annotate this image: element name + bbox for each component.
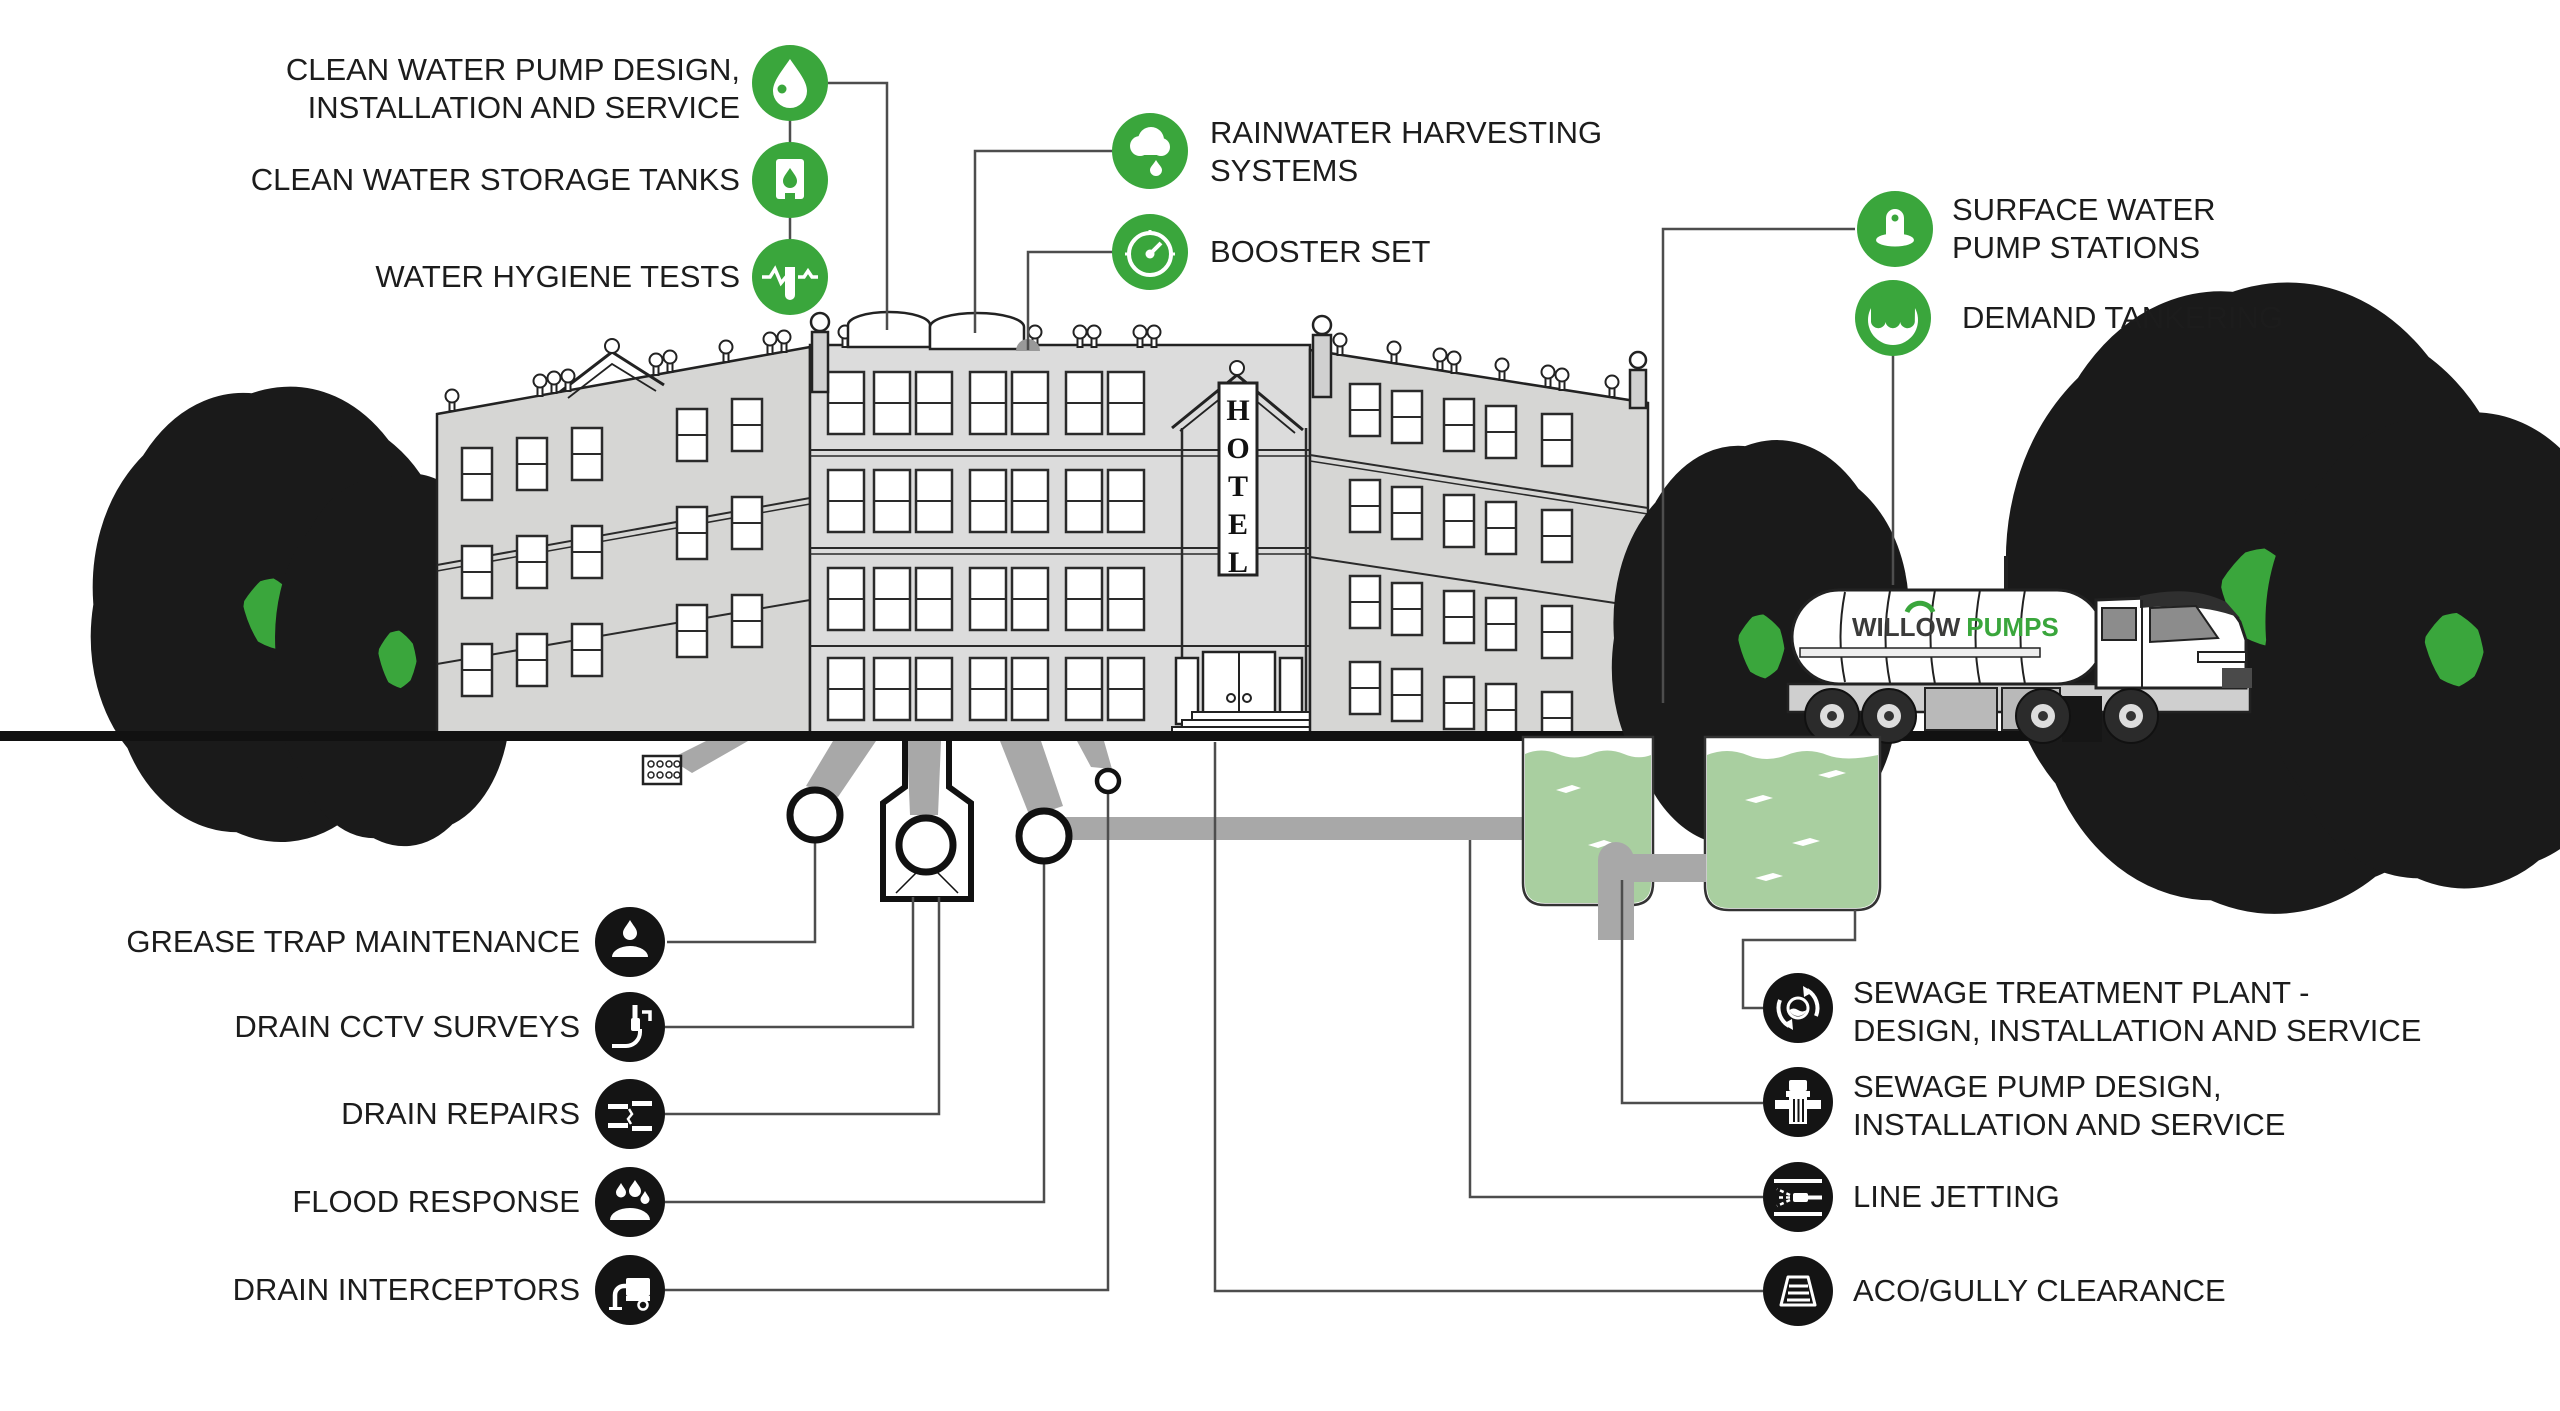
hotel-sign-letter: H <box>1226 394 1249 427</box>
hotel-building: H O T E L <box>437 312 1648 744</box>
label-line: SYSTEMS <box>1210 152 1602 190</box>
label-grease-trap: GREASE TRAP MAINTENANCE <box>126 923 580 961</box>
surface-pump-icon <box>1857 191 1933 267</box>
tree-left-2 <box>346 582 450 739</box>
flood-drops-icon <box>595 1167 665 1237</box>
svg-text:WILLOWPUMPS: WILLOWPUMPS <box>1852 612 2059 642</box>
label-line: INSTALLATION AND SERVICE <box>1853 1106 2285 1144</box>
gauge-icon <box>1112 214 1188 290</box>
sewage-pump-icon <box>1763 1067 1833 1137</box>
treatment-cycle-icon <box>1763 973 1833 1043</box>
grease-trap-icon <box>595 907 665 977</box>
label-drain-cctv: DRAIN CCTV SURVEYS <box>234 1008 580 1046</box>
hotel-sign-letter: T <box>1228 470 1248 503</box>
gully-grate-icon <box>1763 1256 1833 1326</box>
label-sewage-treatment: SEWAGE TREATMENT PLANT - DESIGN, INSTALL… <box>1853 974 2421 1050</box>
sewage-pump-pipe <box>1598 842 1634 940</box>
hotel-sign-letter: L <box>1228 546 1248 579</box>
label-rainwater: RAINWATER HARVESTING SYSTEMS <box>1210 114 1602 190</box>
storage-tank-icon <box>752 142 828 218</box>
hotel-sign-letter: E <box>1228 508 1248 541</box>
hotel-sign-letter: O <box>1226 432 1249 465</box>
label-clean-water-pump: CLEAN WATER PUMP DESIGN, INSTALLATION AN… <box>286 51 740 127</box>
hygiene-test-icon <box>752 239 828 315</box>
interceptor-truck-icon <box>595 1255 665 1325</box>
septic-tank-right <box>1705 737 1880 910</box>
brand-willow: WILLOW <box>1852 612 1961 642</box>
grease-trap-grid <box>643 756 681 784</box>
label-flood-response: FLOOD RESPONSE <box>292 1183 580 1221</box>
roof-tank-2 <box>930 313 1024 349</box>
label-drain-interceptors: DRAIN INTERCEPTORS <box>233 1271 580 1309</box>
rain-cloud-icon <box>1112 113 1188 189</box>
tree-right-3 <box>2374 550 2534 750</box>
roof-tank-1 <box>848 312 930 347</box>
label-line: PUMP STATIONS <box>1952 229 2216 267</box>
label-demand-tankering: DEMAND TANKERING <box>1962 299 2283 337</box>
label-booster: BOOSTER SET <box>1210 233 1430 271</box>
label-line: SEWAGE PUMP DESIGN, <box>1853 1068 2285 1106</box>
label-line: SEWAGE TREATMENT PLANT - <box>1853 974 2421 1012</box>
label-line: SURFACE WATER <box>1952 191 2216 229</box>
label-sewage-pump: SEWAGE PUMP DESIGN, INSTALLATION AND SER… <box>1853 1068 2285 1144</box>
pipe-repair-icon <box>595 1079 665 1149</box>
label-drain-repairs: DRAIN REPAIRS <box>341 1095 580 1133</box>
label-line: INSTALLATION AND SERVICE <box>286 89 740 127</box>
label-line-jetting: LINE JETTING <box>1853 1178 2060 1216</box>
tanker-water-icon <box>1855 280 1931 356</box>
label-surface-water: SURFACE WATER PUMP STATIONS <box>1952 191 2216 267</box>
cctv-camera-icon <box>595 992 665 1062</box>
jetting-nozzle-icon <box>1763 1162 1833 1232</box>
label-water-hygiene: WATER HYGIENE TESTS <box>375 258 740 296</box>
infographic-canvas: H O T E L <box>0 0 2560 1411</box>
label-line: DESIGN, INSTALLATION AND SERVICE <box>1853 1012 2421 1050</box>
label-clean-water-storage: CLEAN WATER STORAGE TANKS <box>251 161 740 199</box>
main-sewer-pipe <box>1062 817 1523 840</box>
brand-pumps: PUMPS <box>1966 612 2058 642</box>
water-drop-icon <box>752 45 828 121</box>
hotel-sign: H O T E L <box>1219 383 1257 579</box>
label-line: RAINWATER HARVESTING <box>1210 114 1602 152</box>
label-aco-gully: ACO/GULLY CLEARANCE <box>1853 1272 2226 1310</box>
label-line: CLEAN WATER PUMP DESIGN, <box>286 51 740 89</box>
